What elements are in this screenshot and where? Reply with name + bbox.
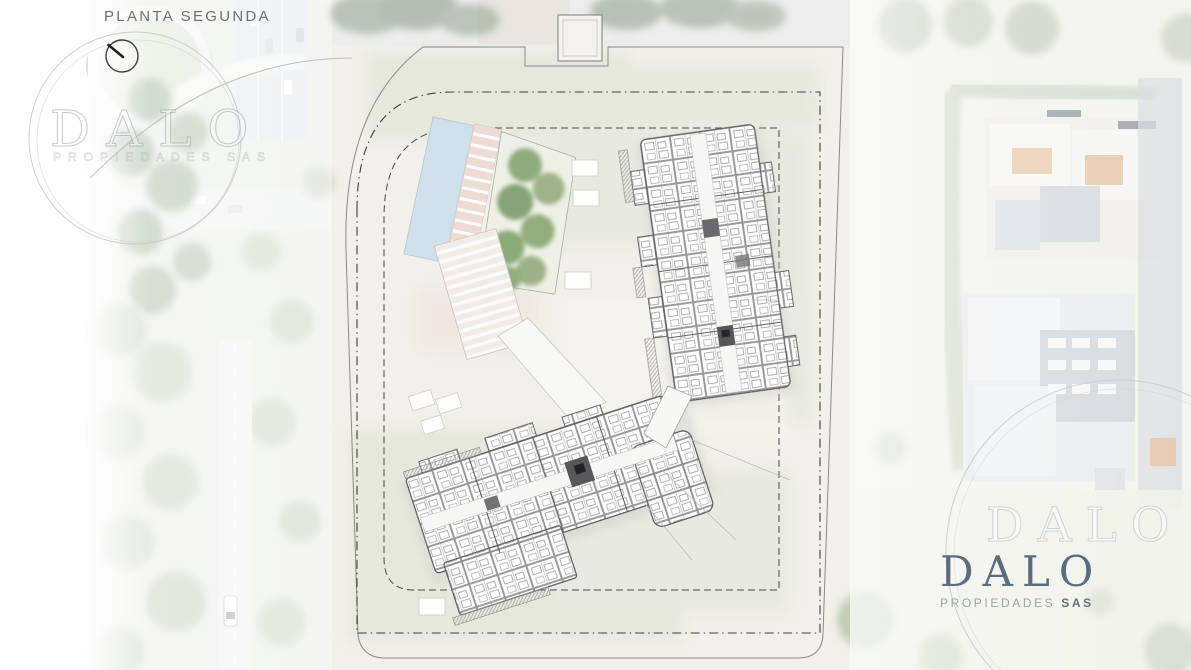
logo-subtitle: PROPIEDADES SAS [940,596,1160,610]
aerial-photo-left [86,0,334,670]
company-logo: DALO PROPIEDADES SAS [940,549,1160,610]
logo-suffix: SAS [1061,596,1093,610]
logo-name: DALO [940,549,1160,595]
page-title: PLANTA SEGUNDA [104,8,271,25]
logo-subtitle-text: PROPIEDADES [940,596,1055,610]
north-compass-icon [106,40,138,72]
floorplan-page: PLANTA SEGUNDA DALO PROPIEDADES SAS DALO… [0,0,1191,670]
